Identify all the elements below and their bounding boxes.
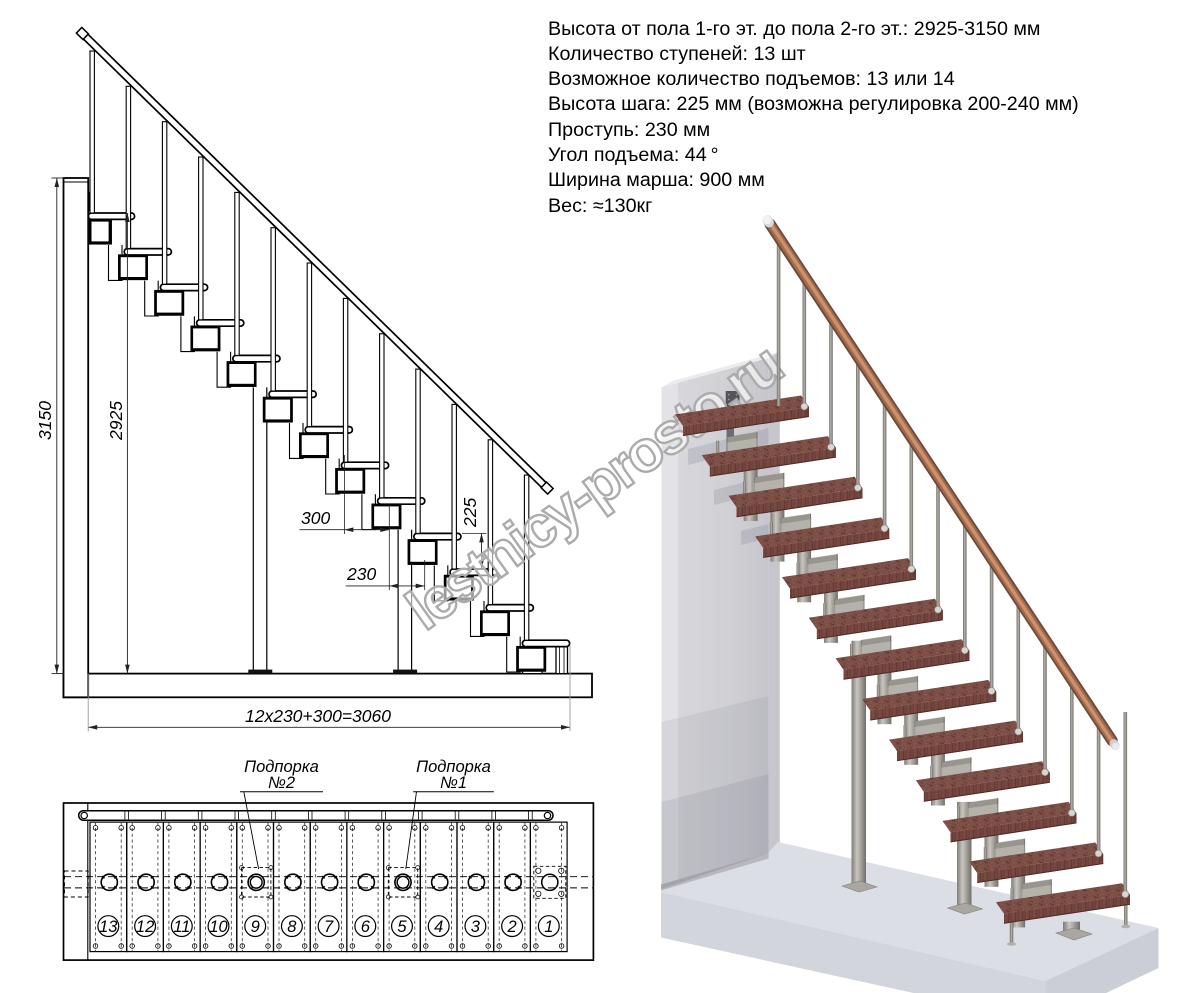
svg-text:5: 5 (397, 918, 407, 936)
svg-text:12: 12 (136, 918, 154, 936)
svg-text:300: 300 (301, 508, 330, 528)
svg-text:3: 3 (471, 918, 481, 936)
svg-text:2: 2 (507, 918, 517, 936)
svg-text:7: 7 (324, 918, 334, 936)
svg-text:№2: №2 (268, 774, 295, 792)
svg-text:4: 4 (434, 918, 443, 936)
svg-text:9: 9 (251, 918, 260, 936)
svg-text:3150: 3150 (35, 401, 55, 440)
svg-text:8: 8 (287, 918, 297, 936)
svg-text:12x230+300=3060: 12x230+300=3060 (245, 706, 391, 726)
svg-text:1: 1 (544, 918, 553, 936)
svg-text:11: 11 (173, 918, 190, 936)
svg-text:230: 230 (346, 564, 376, 584)
svg-text:№1: №1 (440, 774, 467, 792)
svg-text:10: 10 (209, 918, 228, 936)
svg-text:6: 6 (361, 918, 371, 936)
svg-text:13: 13 (99, 918, 118, 936)
svg-text:2925: 2925 (106, 401, 126, 441)
svg-text:225: 225 (460, 498, 480, 528)
